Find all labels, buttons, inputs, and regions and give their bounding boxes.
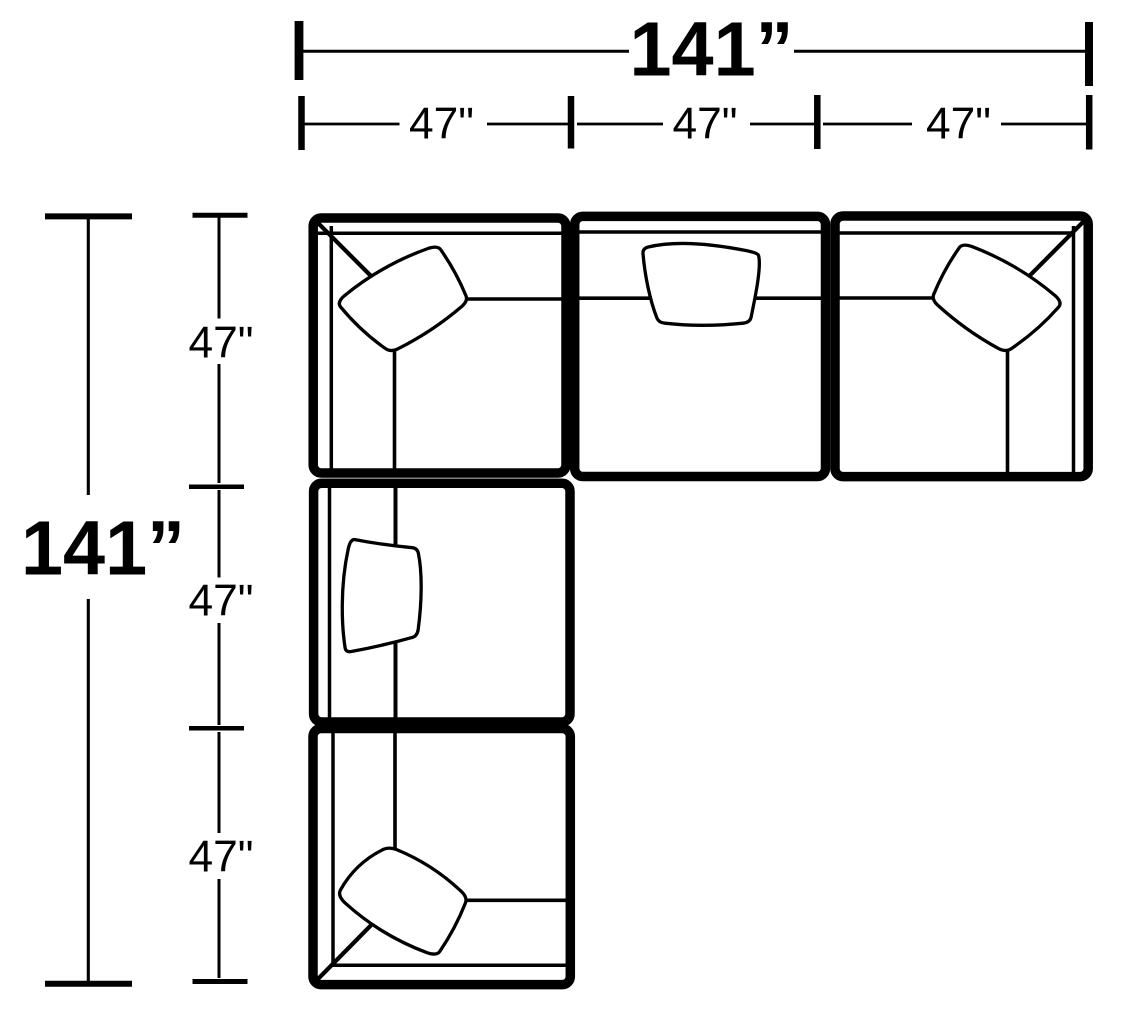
- svg-text:47": 47": [409, 100, 474, 149]
- svg-text:47": 47": [189, 319, 254, 368]
- svg-text:47": 47": [189, 833, 254, 882]
- svg-text:141”: 141”: [21, 506, 185, 592]
- svg-text:47": 47": [189, 577, 254, 626]
- svg-text:47": 47": [926, 100, 991, 149]
- svg-text:141”: 141”: [630, 7, 794, 93]
- svg-text:47": 47": [673, 100, 738, 149]
